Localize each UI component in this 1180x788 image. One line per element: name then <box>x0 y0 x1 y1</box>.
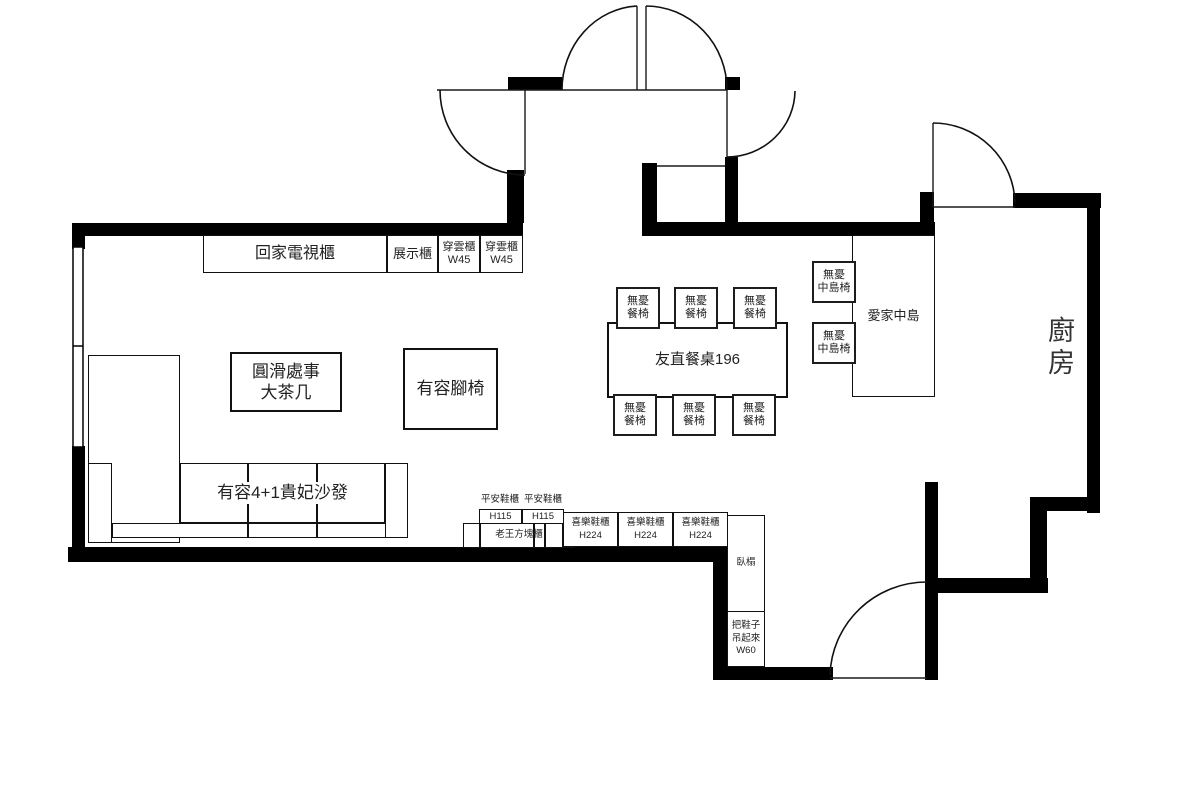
island-chair: 無憂 中島椅 <box>812 322 856 364</box>
shoe-hanger-line3: W60 <box>736 645 756 657</box>
tv-cabinet: 回家電視櫃 <box>203 235 387 273</box>
display-cabinet: 展示櫃 <box>387 235 438 273</box>
sofa-front-edge <box>112 523 408 538</box>
wall-right-lower <box>1030 497 1047 593</box>
island-label: 愛家中島 <box>867 308 919 324</box>
cloud-cabinet-2-size: W45 <box>490 254 513 267</box>
cloud-cabinet-2-name: 穿雲櫃 <box>485 241 518 254</box>
sofa-label: 有容4+1貴妃沙發 <box>215 482 350 503</box>
sofa-left-armrest <box>88 463 112 543</box>
island-chair-label: 無憂 <box>823 269 845 282</box>
cube-cabinet-divider <box>544 524 546 547</box>
joy-shoe-cabinet: 喜樂鞋櫃 H224 <box>618 512 673 547</box>
pingan-cabinet-label-1: 平安鞋櫃 <box>478 494 522 507</box>
footstool: 有容腳椅 <box>403 348 498 430</box>
cloud-cabinet-2: 穿雲櫃 W45 <box>480 235 523 273</box>
tv-cabinet-label: 回家電視櫃 <box>255 244 335 264</box>
joy-shoe-label: 喜樂鞋櫃 <box>681 517 719 529</box>
wall-entry-block-left <box>508 77 562 90</box>
chair-label: 無憂 <box>744 295 766 308</box>
wall-bottom-entry <box>713 667 833 680</box>
wall-entry-hinge <box>925 482 938 680</box>
kitchen-room-label: 廚房 <box>1040 316 1079 380</box>
joy-shoe-label: 喜樂鞋櫃 <box>626 517 664 529</box>
island-chair: 無憂 中島椅 <box>812 261 856 303</box>
kitchen-island: 愛家中島 <box>852 235 935 397</box>
dining-chair: 無憂 餐椅 <box>733 287 777 329</box>
wall-dining-top <box>642 222 935 236</box>
daybed-label: 臥榻 <box>736 557 755 569</box>
shoe-hanger: 把鞋子 吊起來 W60 <box>727 611 765 667</box>
wall-segments <box>68 77 1101 680</box>
cloud-cabinet-1: 穿雲櫃 W45 <box>438 235 480 273</box>
chair-label: 無憂 <box>685 295 707 308</box>
door-arc-main-left <box>562 6 637 90</box>
door-arc-vestibule-right <box>727 91 795 157</box>
wall-right <box>1087 193 1100 513</box>
chair-label: 餐椅 <box>683 415 705 428</box>
sofa-front-divider <box>316 524 318 537</box>
dining-table-label: 友直餐桌196 <box>655 351 740 370</box>
wall-vestibule-left <box>507 170 524 223</box>
island-chair-label: 中島椅 <box>818 282 851 295</box>
chair-label: 餐椅 <box>743 415 765 428</box>
window-left <box>73 247 83 447</box>
door-arc-vestibule-left <box>440 90 525 175</box>
sofa-right-armrest <box>385 463 408 538</box>
chair-label: 無憂 <box>743 402 765 415</box>
chair-label: 無憂 <box>683 402 705 415</box>
display-cabinet-label: 展示櫃 <box>393 246 432 262</box>
joy-shoe-label: 喜樂鞋櫃 <box>571 517 609 529</box>
coffee-table-label-line2: 大茶几 <box>261 382 312 403</box>
door-arc-kitchen <box>933 123 1015 203</box>
wall-kitchen-top <box>1013 193 1101 208</box>
cloud-cabinet-1-name: 穿雲櫃 <box>443 241 476 254</box>
wall-vestibule-right2 <box>725 157 738 223</box>
dining-table: 友直餐桌196 <box>607 322 788 398</box>
floor-plan: 回家電視櫃 展示櫃 穿雲櫃 W45 穿雲櫃 W45 圓滑處事 大茶几 有容腳椅 … <box>0 0 1180 788</box>
door-arc-rear-entry <box>830 582 927 675</box>
wall-corner-topleft <box>72 223 85 249</box>
island-chair-label: 中島椅 <box>818 343 851 356</box>
cloud-cabinet-1-size: W45 <box>448 254 471 267</box>
coffee-table-label-line1: 圓滑處事 <box>252 361 320 382</box>
wall-left-lower <box>72 446 85 550</box>
wall-bottom <box>68 547 728 562</box>
wall-vestibule-right1 <box>642 163 657 223</box>
dining-chair: 無憂 餐椅 <box>732 394 776 436</box>
shoe-hanger-line2: 吊起來 <box>732 633 761 645</box>
chair-label: 餐椅 <box>624 415 646 428</box>
sofa-main: 有容4+1貴妃沙發 <box>180 463 385 523</box>
dining-chair: 無憂 餐椅 <box>674 287 718 329</box>
cube-cabinet-label: 老王方塊櫃 <box>495 529 543 541</box>
sofa-front-divider <box>247 524 249 537</box>
joy-shoe-cabinet: 喜樂鞋櫃 H224 <box>673 512 728 547</box>
cube-cabinet: 老王方塊櫃 <box>463 523 575 548</box>
door-arc-main-right <box>646 6 727 90</box>
joy-shoe-size: H224 <box>634 530 657 542</box>
daybed: 臥榻 <box>727 515 765 612</box>
dining-chair: 無憂 餐椅 <box>672 394 716 436</box>
shoe-hanger-line1: 把鞋子 <box>732 620 761 632</box>
chair-label: 餐椅 <box>744 308 766 321</box>
joy-shoe-size: H224 <box>689 530 712 542</box>
joy-shoe-cabinet: 喜樂鞋櫃 H224 <box>563 512 618 547</box>
dining-chair: 無憂 餐椅 <box>616 287 660 329</box>
cube-cabinet-divider <box>479 524 481 547</box>
joy-shoe-size: H224 <box>579 530 602 542</box>
coffee-table: 圓滑處事 大茶几 <box>230 352 342 412</box>
chair-label: 無憂 <box>624 402 646 415</box>
dining-chair: 無憂 餐椅 <box>613 394 657 436</box>
chair-label: 餐椅 <box>627 308 649 321</box>
chair-label: 無憂 <box>627 295 649 308</box>
island-chair-label: 無憂 <box>823 330 845 343</box>
chair-label: 餐椅 <box>685 308 707 321</box>
pingan-cabinet-label-2: 平安鞋櫃 <box>521 494 565 507</box>
footstool-label: 有容腳椅 <box>417 378 485 399</box>
